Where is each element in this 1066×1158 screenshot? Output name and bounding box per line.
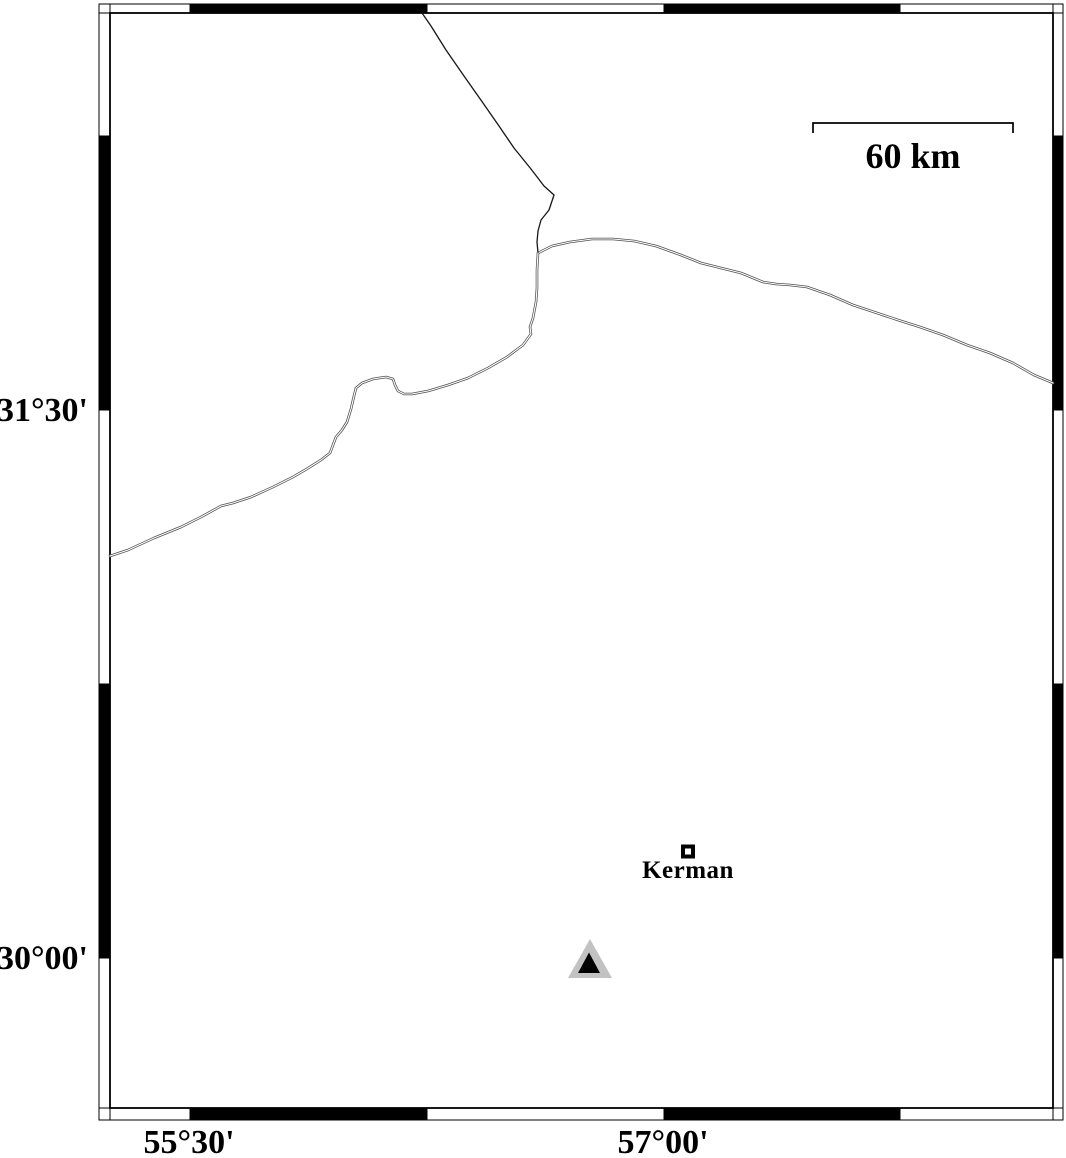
city-label: Kerman <box>642 857 734 884</box>
frame-segment-bottom <box>900 1108 1063 1120</box>
frame-segment-top <box>427 4 664 13</box>
frame-corner <box>1053 1108 1063 1120</box>
road-east <box>538 239 1053 383</box>
frame-segment-bottom <box>664 1108 900 1120</box>
frame-segment-top <box>900 4 1063 13</box>
frame-segment-top <box>99 4 190 13</box>
frame-segment-right <box>1053 4 1063 136</box>
frame-segment-right <box>1053 958 1063 1120</box>
scale-bar-bracket <box>813 123 1013 133</box>
scale-bar <box>813 123 1013 133</box>
frame-segment-right <box>1053 136 1063 410</box>
frame-segment-left <box>99 410 110 684</box>
road-southwest <box>110 253 538 556</box>
road-southwest-core <box>110 253 538 556</box>
frame-segment-right <box>1053 410 1063 684</box>
map-figure: 31°30' 30°00' 55°30' 57°00' 60 km Kerman <box>0 0 1066 1158</box>
road-east-core <box>538 239 1053 383</box>
frame-segment-top <box>664 4 900 13</box>
frame-segment-left <box>99 684 110 958</box>
lon-label-left: 55°30' <box>143 1124 234 1158</box>
frame-segment-left <box>99 136 110 410</box>
frame-segment-right <box>1053 684 1063 958</box>
frame-corner <box>1053 4 1063 13</box>
frame-segment-left <box>99 958 110 1120</box>
lat-label-bottom: 30°00' <box>0 940 88 977</box>
map-lines <box>110 13 1053 556</box>
map-canvas: 31°30' 30°00' 55°30' 57°00' 60 km Kerman <box>0 0 1066 1158</box>
frame-corner <box>99 4 110 13</box>
frame-segment-top <box>190 4 427 13</box>
city-marker <box>683 847 693 857</box>
frame-segment-bottom <box>99 1108 190 1120</box>
lon-label-right: 57°00' <box>617 1124 708 1158</box>
scale-bar-label: 60 km <box>865 136 960 176</box>
frame-corner <box>99 1108 110 1120</box>
frame-segment-left <box>99 4 110 136</box>
lat-label-top: 31°30' <box>0 392 88 429</box>
frame-segment-bottom <box>190 1108 427 1120</box>
frame-segment-bottom <box>427 1108 664 1120</box>
map-border <box>110 13 1053 1108</box>
boundary-line <box>422 13 554 253</box>
